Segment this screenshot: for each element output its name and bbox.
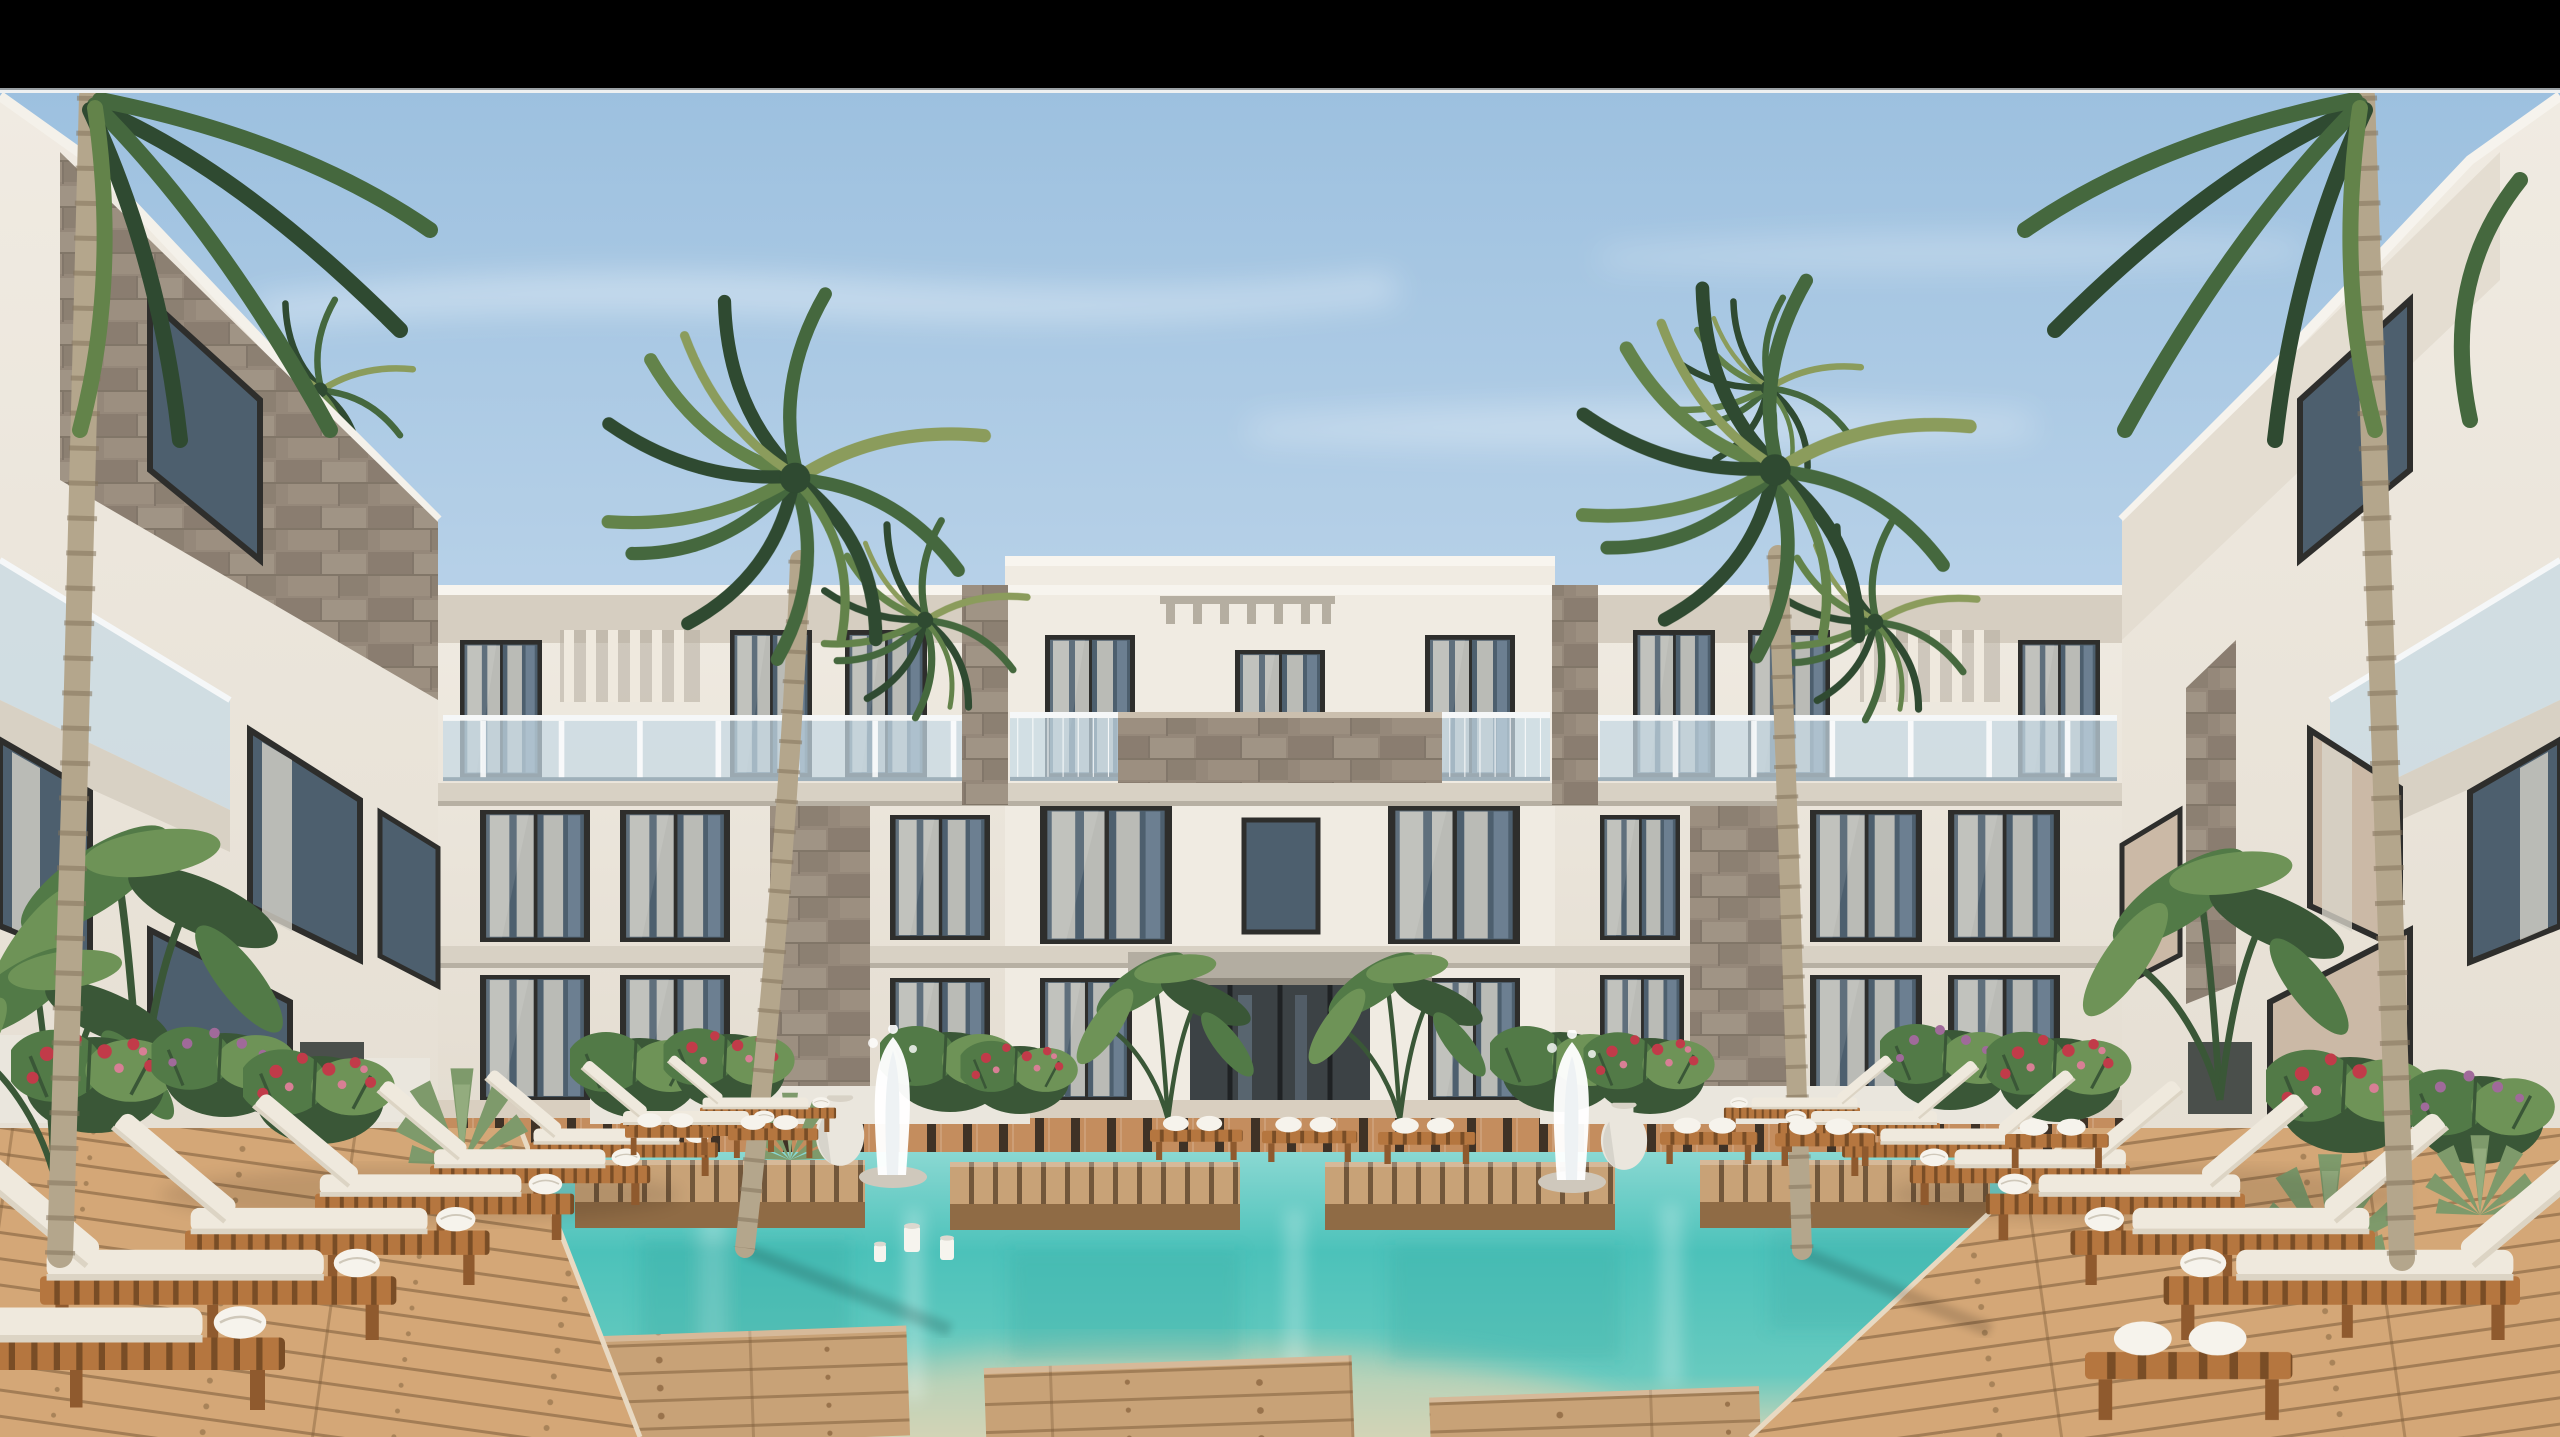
center-roof-parapet bbox=[1005, 556, 1555, 566]
balcony-railing-left bbox=[443, 715, 1003, 781]
separator-line-dark bbox=[0, 88, 2560, 90]
middle-floor-windows bbox=[480, 806, 2060, 944]
letterbox bbox=[0, 0, 2560, 93]
right-stone-pillar bbox=[2186, 640, 2236, 1004]
letterbox-bar bbox=[0, 0, 2560, 88]
slab-shadow bbox=[438, 801, 2122, 806]
floor-slab bbox=[438, 783, 2122, 803]
separator-line-light bbox=[0, 90, 2560, 93]
balcony-railing-center bbox=[1010, 712, 1118, 781]
balcony-railing-center bbox=[1442, 712, 1550, 781]
render-canvas bbox=[0, 0, 2560, 1437]
balcony-railing-right bbox=[1557, 715, 2117, 781]
stone-pilaster bbox=[1552, 585, 1598, 805]
